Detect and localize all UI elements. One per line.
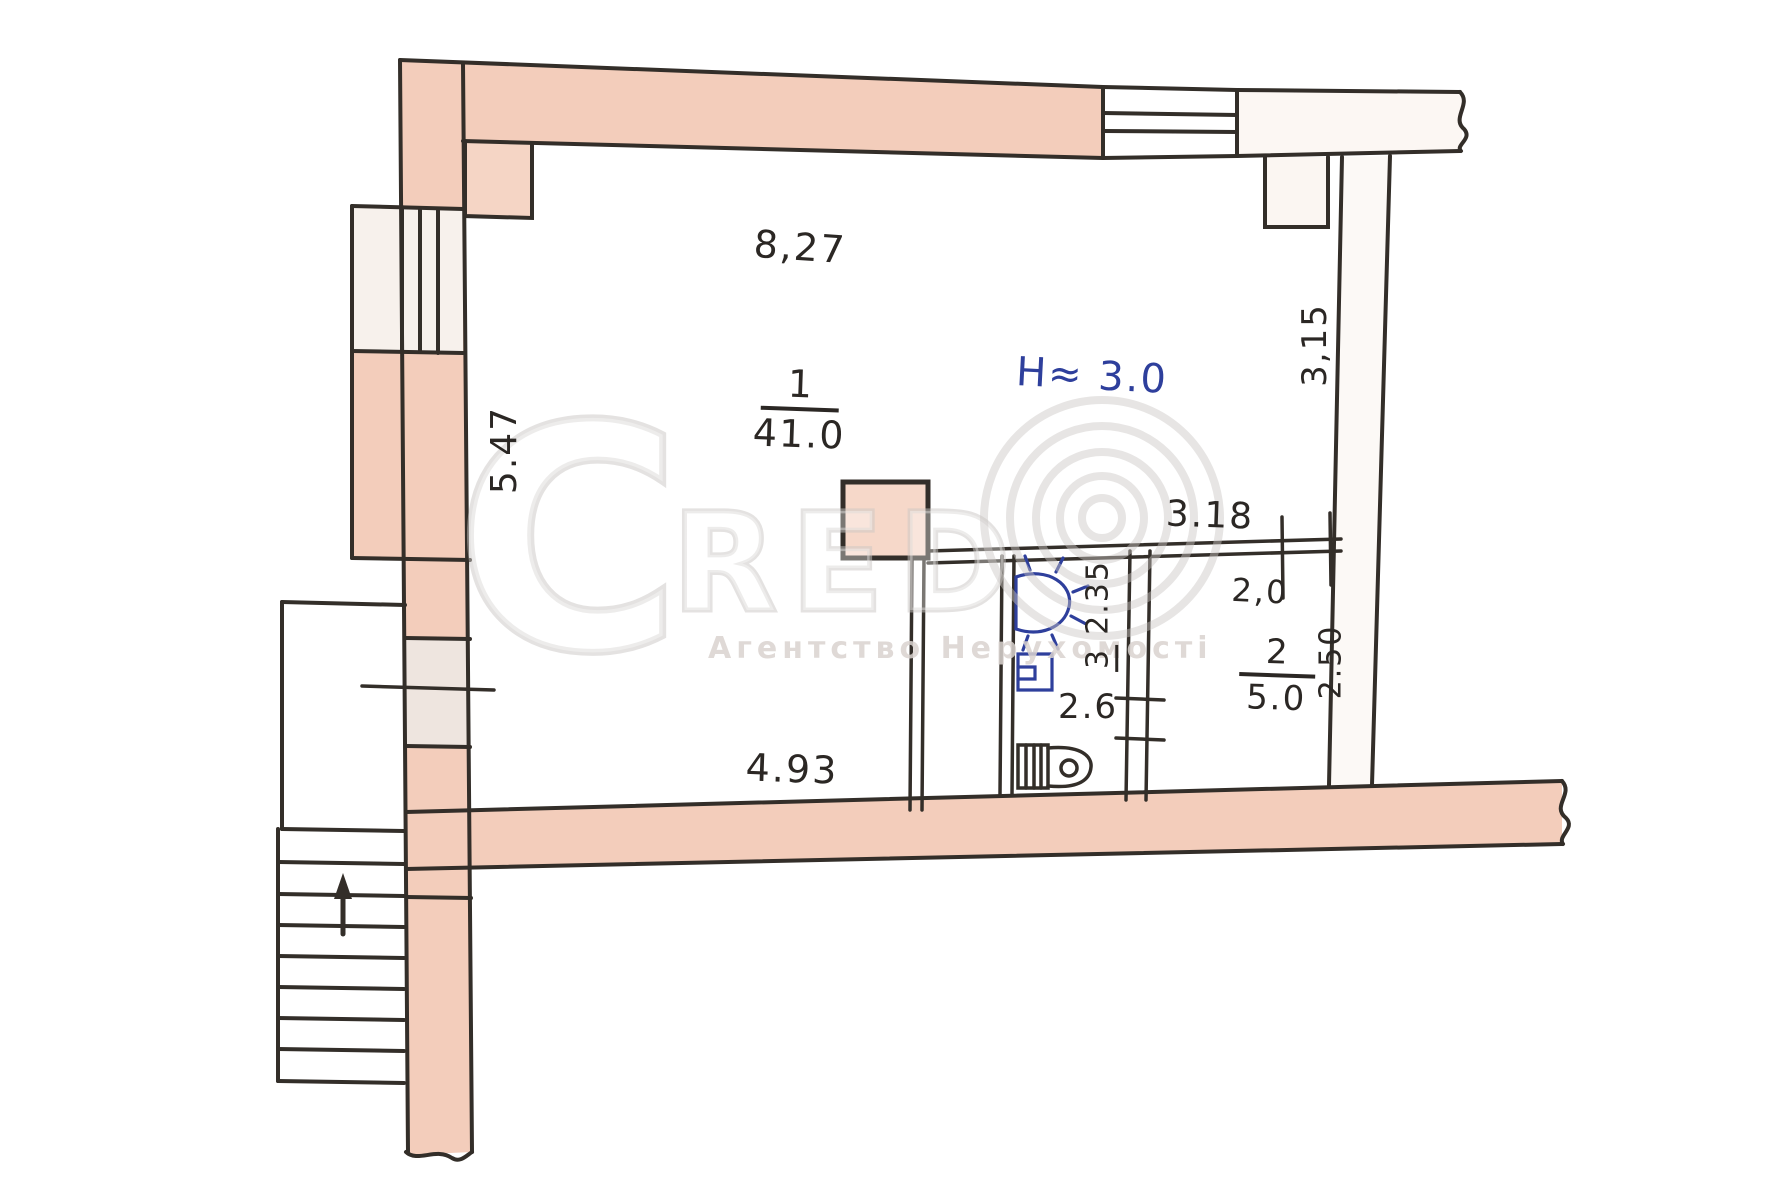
floor-plan-page: C RED Агентство Нерухомості 8,27 5.47 3,… (0, 0, 1772, 1181)
dim-bottom-width: 4.93 (745, 748, 839, 791)
floor-plan-drawing: C RED Агентство Нерухомості (0, 0, 1772, 1181)
room2-label: 2 5.0 (1238, 634, 1316, 718)
dim-top-width: 8,27 (752, 225, 847, 271)
entrance-landing (282, 602, 405, 831)
room2-number: 2 (1239, 634, 1316, 678)
wall-fills (352, 60, 1562, 1155)
dim-inner-wall-top: 3.18 (1165, 496, 1254, 537)
dim-wc-width: 2.6 (1058, 690, 1118, 726)
water-heater-fixture (1018, 654, 1052, 690)
room3-number: 3 (1082, 645, 1118, 672)
dim-inner-wall-sub: 2,0 (1231, 574, 1290, 611)
sink-fixture (1016, 556, 1088, 650)
top-wall-window (1103, 87, 1237, 158)
room2-area: 5.0 (1238, 676, 1315, 718)
room1-label: 1 41.0 (752, 364, 848, 457)
dim-room2-depth: 2.50 (1315, 625, 1347, 700)
room3-area: 2.35 (1082, 560, 1114, 635)
room3-label: 3 2.35 (1082, 560, 1118, 672)
staircase (278, 829, 404, 1083)
outer-walls (400, 60, 1569, 1160)
dim-right-height: 3,15 (1298, 303, 1334, 387)
dim-left-height: 5.47 (486, 406, 524, 494)
toilet-fixture (1018, 745, 1091, 788)
ceiling-height-note: H≈ 3.0 (1015, 351, 1169, 401)
room1-number: 1 (761, 364, 841, 413)
room1-area: 41.0 (752, 409, 846, 456)
entry-door-mark (362, 686, 494, 690)
watermark-agency-text: Агентство Нерухомості (708, 631, 1213, 666)
